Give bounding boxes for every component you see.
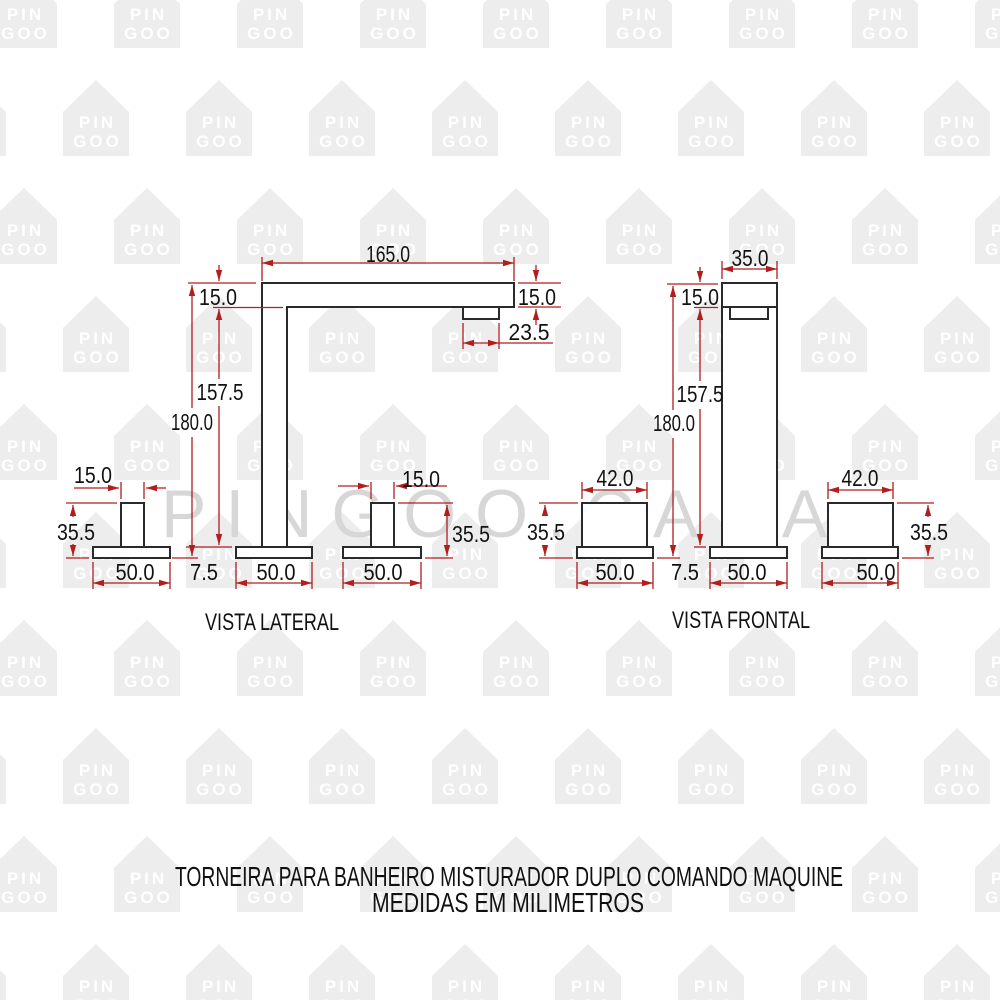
dim-front-cap-height: 15.0: [681, 284, 719, 310]
dim-front-right-handle-width: 42.0: [842, 465, 879, 491]
front-right-handle: [828, 503, 893, 547]
dim-side-right-base-width: 50.0: [364, 559, 403, 585]
dim-front-left-handle-width: 42.0: [597, 465, 634, 491]
dim-side-right-handle-height: 35.5: [452, 521, 490, 547]
dim-front-base-thickness: 7.5: [671, 559, 699, 585]
dim-front-total-height: 180.0: [653, 410, 695, 436]
dim-front-right-handle-height: 35.5: [910, 519, 948, 545]
units-note: MEDIDAS EM MILIMETROS: [372, 887, 644, 918]
side-right-handle-stem: [371, 503, 394, 547]
side-left-handle-stem: [121, 503, 144, 547]
dim-side-right-handle-width: 15.0: [402, 466, 440, 492]
dim-side-height-under-spout: 157.5: [197, 379, 244, 405]
side-left-base: [93, 547, 170, 558]
page: PINGOOPINGOOPINGOOPINGOOPINGOOPINGOOPING…: [0, 0, 1000, 1000]
dim-side-left-base-width: 50.0: [116, 559, 155, 585]
dim-front-right-base-width: 50.0: [857, 559, 896, 585]
dim-front-left-handle-height: 35.5: [527, 519, 565, 545]
dim-side-left-handle-width: 15.0: [74, 462, 112, 488]
dim-side-aerator-length: 23.5: [509, 319, 550, 345]
side-center-base: [236, 547, 312, 558]
footer: TORNEIRA PARA BANHEIRO MISTURADOR DUPLO …: [175, 861, 843, 918]
dim-front-height-under-cap: 157.5: [677, 381, 724, 407]
dim-side-center-base-width: 50.0: [257, 559, 296, 585]
dim-front-left-base-width: 50.0: [596, 559, 635, 585]
front-left-handle: [582, 503, 647, 547]
front-view-label: VISTA FRONTAL: [672, 607, 810, 634]
technical-drawing: 165.0 15.0 157.5 180.0 15.0 35.5 50.0 7.…: [0, 0, 1000, 1000]
dim-front-center-base-width: 50.0: [728, 559, 767, 585]
side-view: [93, 283, 514, 558]
dim-side-spout-thickness-right: 15.0: [518, 284, 556, 310]
front-right-base: [822, 547, 898, 558]
front-view: [577, 283, 898, 558]
dim-side-base-thickness: 7.5: [190, 559, 218, 585]
side-aerator: [463, 307, 499, 319]
dim-front-body-width: 35.0: [732, 245, 769, 271]
front-center-base: [710, 547, 787, 558]
dim-side-spout-length: 165.0: [366, 241, 410, 267]
front-aerator: [730, 307, 768, 319]
dim-side-spout-thickness: 15.0: [199, 284, 237, 310]
side-view-label: VISTA LATERAL: [205, 609, 339, 636]
dim-side-left-handle-height: 35.5: [57, 519, 95, 545]
front-body: [722, 283, 777, 547]
side-right-base: [343, 547, 421, 558]
front-left-base: [577, 547, 653, 558]
dim-side-total-height: 180.0: [171, 409, 213, 435]
